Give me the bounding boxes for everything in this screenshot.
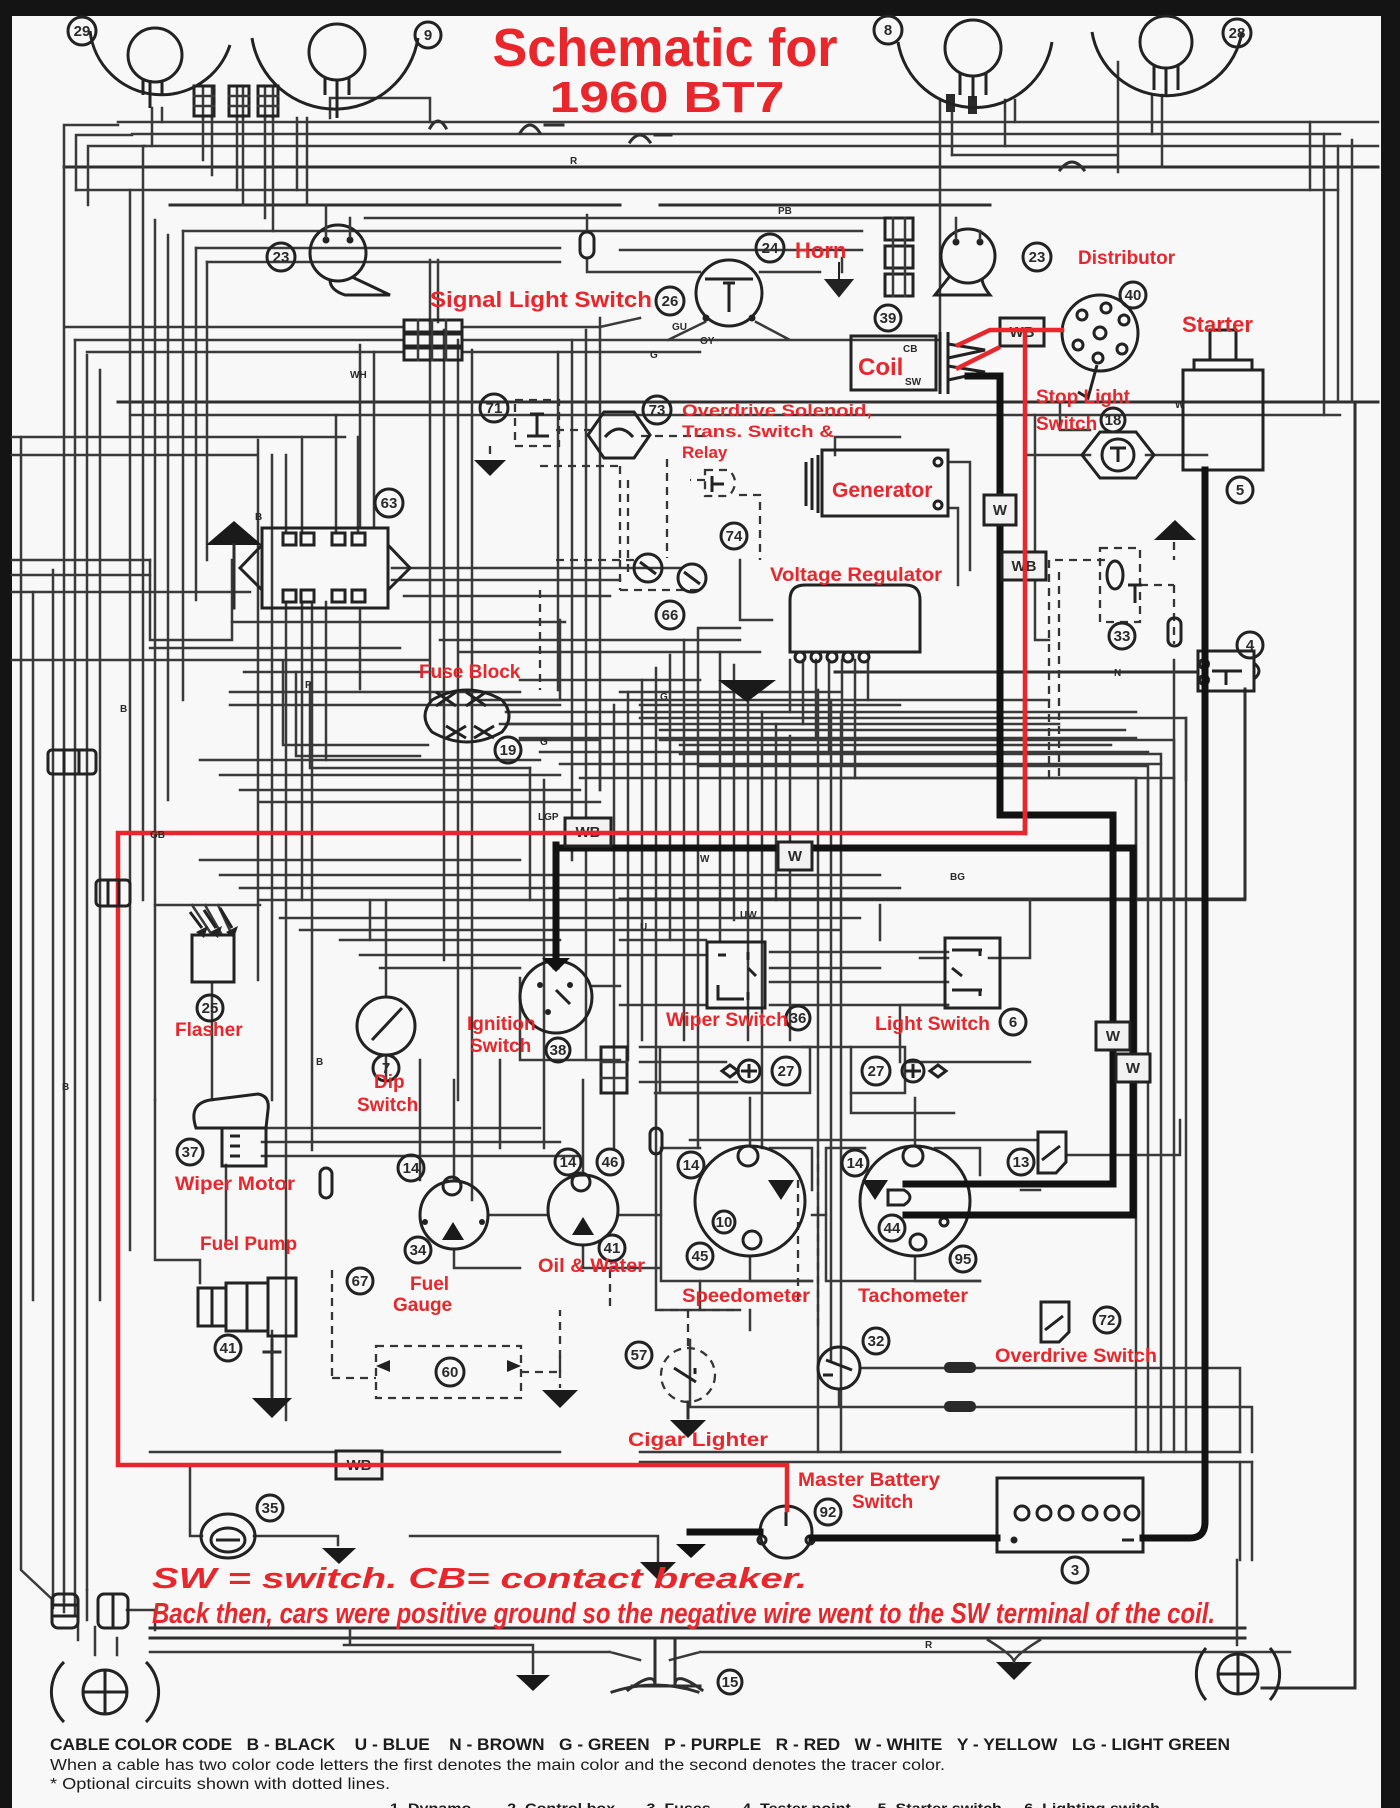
svg-text:15: 15 bbox=[722, 1674, 739, 1691]
svg-text:60: 60 bbox=[442, 1364, 459, 1381]
svg-text:5: 5 bbox=[1236, 482, 1244, 499]
svg-text:Fuel: Fuel bbox=[410, 1274, 449, 1295]
svg-text:66: 66 bbox=[662, 607, 679, 624]
svg-text:67: 67 bbox=[352, 1273, 369, 1290]
svg-text:34: 34 bbox=[410, 1242, 427, 1259]
svg-text:GU: GU bbox=[672, 322, 687, 333]
svg-text:G: G bbox=[540, 737, 548, 748]
svg-text:G: G bbox=[660, 692, 668, 703]
svg-text:SW: SW bbox=[905, 377, 922, 388]
svg-text:Oil & Water: Oil & Water bbox=[538, 1256, 646, 1277]
svg-text:Flasher: Flasher bbox=[175, 1020, 243, 1041]
svg-text:Generator: Generator bbox=[832, 479, 932, 502]
svg-text:Speedometer: Speedometer bbox=[682, 1286, 811, 1307]
svg-text:Cigar Lighter: Cigar Lighter bbox=[628, 1430, 769, 1451]
svg-text:41: 41 bbox=[220, 1340, 237, 1357]
svg-text:35: 35 bbox=[262, 1500, 279, 1517]
svg-text:72: 72 bbox=[1099, 1312, 1116, 1329]
svg-text:Relay: Relay bbox=[682, 443, 728, 462]
svg-text:27: 27 bbox=[868, 1063, 885, 1080]
svg-text:10: 10 bbox=[716, 1214, 733, 1231]
svg-text:WH: WH bbox=[350, 370, 367, 381]
svg-text:24: 24 bbox=[762, 240, 779, 257]
svg-text:25: 25 bbox=[202, 1000, 219, 1017]
svg-text:Gauge: Gauge bbox=[393, 1295, 452, 1316]
svg-text:Wiper Switch: Wiper Switch bbox=[666, 1010, 788, 1031]
svg-text:27: 27 bbox=[778, 1063, 795, 1080]
svg-text:WB: WB bbox=[1010, 324, 1035, 341]
svg-text:14: 14 bbox=[403, 1160, 420, 1177]
svg-text:Master Battery: Master Battery bbox=[798, 1470, 940, 1491]
svg-text:Ignition: Ignition bbox=[467, 1014, 536, 1035]
svg-text:14: 14 bbox=[560, 1154, 577, 1171]
svg-text:57: 57 bbox=[631, 1347, 648, 1364]
svg-text:Switch: Switch bbox=[852, 1492, 913, 1513]
svg-text:LGP: LGP bbox=[538, 812, 559, 823]
svg-text:Voltage Regulator: Voltage Regulator bbox=[770, 565, 943, 586]
svg-text:26: 26 bbox=[662, 293, 679, 310]
svg-text:W: W bbox=[1126, 1060, 1141, 1077]
svg-text:Overdrive Switch: Overdrive Switch bbox=[995, 1346, 1157, 1367]
svg-text:Switch: Switch bbox=[1036, 414, 1097, 435]
svg-text:UW: UW bbox=[740, 910, 757, 921]
svg-text:PB: PB bbox=[778, 206, 792, 217]
svg-text:B: B bbox=[120, 704, 127, 715]
svg-text:G: G bbox=[650, 350, 658, 361]
svg-text:Horn: Horn bbox=[795, 238, 846, 263]
svg-text:B: B bbox=[255, 512, 262, 523]
svg-text:1. Dynamo 2. Control bo: 1. Dynamo 2. Control box 3. Fuses 4. Tes… bbox=[390, 1800, 1160, 1808]
svg-text:41: 41 bbox=[604, 1240, 621, 1257]
svg-text:CB: CB bbox=[903, 344, 917, 355]
svg-text:Overdrive Solenoid,: Overdrive Solenoid, bbox=[682, 401, 872, 420]
svg-text:39: 39 bbox=[880, 310, 897, 327]
svg-text:73: 73 bbox=[649, 402, 666, 419]
svg-text:36: 36 bbox=[790, 1010, 807, 1027]
svg-text:When a cable has two color cod: When a cable has two color code letters … bbox=[50, 1757, 945, 1774]
svg-text:Distributor: Distributor bbox=[1078, 248, 1176, 269]
svg-text:GB: GB bbox=[150, 830, 165, 841]
svg-text:GY: GY bbox=[700, 336, 715, 347]
svg-text:37: 37 bbox=[182, 1144, 199, 1161]
svg-text:Starter: Starter bbox=[1182, 312, 1253, 337]
svg-text:23: 23 bbox=[1029, 249, 1046, 266]
svg-text:8: 8 bbox=[884, 22, 892, 39]
svg-text:W: W bbox=[700, 854, 710, 865]
svg-text:74: 74 bbox=[726, 528, 743, 545]
svg-text:19: 19 bbox=[500, 742, 517, 759]
svg-text:40: 40 bbox=[1125, 287, 1142, 304]
svg-text:Schematic for: Schematic for bbox=[493, 18, 838, 78]
svg-text:45: 45 bbox=[692, 1248, 709, 1265]
svg-text:14: 14 bbox=[847, 1155, 864, 1172]
svg-text:23: 23 bbox=[273, 249, 290, 266]
svg-text:1960 BT7: 1960 BT7 bbox=[550, 73, 785, 122]
svg-text:Switch: Switch bbox=[470, 1036, 531, 1057]
svg-text:Coil: Coil bbox=[858, 354, 903, 381]
svg-text:Tachometer: Tachometer bbox=[858, 1286, 969, 1307]
svg-text:32: 32 bbox=[868, 1333, 885, 1350]
svg-text:CABLE COLOR CODE B - BLACK: CABLE COLOR CODE B - BLACK U - BLUE N - … bbox=[50, 1735, 1230, 1754]
svg-text:33: 33 bbox=[1114, 628, 1131, 645]
svg-text:P: P bbox=[305, 680, 312, 691]
svg-text:Stop Light: Stop Light bbox=[1036, 387, 1131, 408]
svg-text:14: 14 bbox=[683, 1157, 700, 1174]
svg-text:Wiper Motor: Wiper Motor bbox=[175, 1174, 296, 1195]
svg-text:38: 38 bbox=[550, 1042, 567, 1059]
svg-text:W: W bbox=[788, 848, 803, 865]
svg-text:13: 13 bbox=[1013, 1154, 1030, 1171]
svg-text:W: W bbox=[993, 502, 1008, 519]
svg-text:Dip: Dip bbox=[374, 1072, 405, 1093]
svg-text:Switch: Switch bbox=[357, 1095, 418, 1116]
svg-text:R: R bbox=[925, 1640, 933, 1651]
svg-text:28: 28 bbox=[1229, 25, 1246, 42]
svg-text:U: U bbox=[640, 922, 647, 933]
svg-text:Fuse Block: Fuse Block bbox=[419, 662, 521, 683]
svg-text:71: 71 bbox=[486, 400, 503, 417]
svg-text:Signal Light Switch: Signal Light Switch bbox=[430, 287, 652, 312]
svg-text:44: 44 bbox=[884, 1220, 901, 1237]
svg-text:95: 95 bbox=[955, 1251, 972, 1268]
svg-text:3: 3 bbox=[1071, 1562, 1079, 1579]
svg-text:92: 92 bbox=[820, 1504, 837, 1521]
svg-text:W: W bbox=[1175, 400, 1185, 411]
svg-text:Light Switch: Light Switch bbox=[875, 1014, 990, 1035]
svg-text:46: 46 bbox=[602, 1154, 619, 1171]
svg-text:Trans. Switch &: Trans. Switch & bbox=[682, 422, 834, 441]
svg-text:63: 63 bbox=[381, 495, 398, 512]
svg-text:SW = switch. CB= contact break: SW = switch. CB= contact breaker. bbox=[152, 1563, 807, 1595]
svg-text:N: N bbox=[1114, 668, 1121, 679]
svg-text:R: R bbox=[570, 156, 578, 167]
svg-text:29: 29 bbox=[74, 23, 91, 40]
svg-text:9: 9 bbox=[424, 27, 432, 44]
svg-text:W: W bbox=[1106, 1028, 1121, 1045]
svg-text:18: 18 bbox=[1105, 412, 1122, 429]
svg-text:B: B bbox=[62, 1082, 69, 1093]
svg-text:Fuel Pump: Fuel Pump bbox=[200, 1234, 297, 1255]
svg-text:B: B bbox=[316, 1057, 323, 1068]
svg-text:6: 6 bbox=[1009, 1014, 1017, 1031]
svg-text:BG: BG bbox=[950, 872, 965, 883]
svg-text:* Optional circuits shown with: * Optional circuits shown with dotted li… bbox=[50, 1776, 390, 1793]
svg-text:Back then, cars were positive: Back then, cars were positive ground so … bbox=[152, 1598, 1215, 1630]
